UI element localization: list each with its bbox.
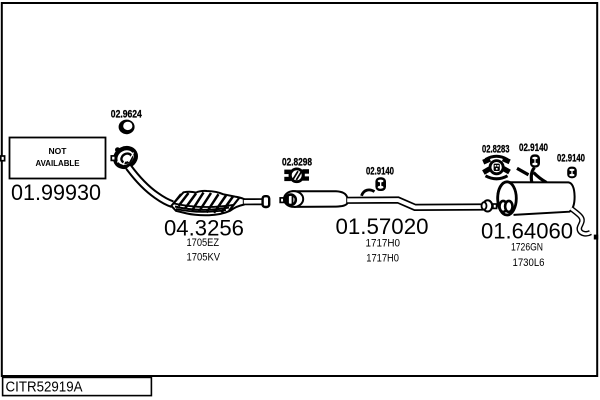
svg-text:1705KV: 1705KV	[187, 252, 221, 264]
svg-text:01.64060: 01.64060	[481, 219, 573, 244]
svg-text:1705EZ: 1705EZ	[187, 237, 220, 249]
svg-text:02.9140: 02.9140	[366, 165, 394, 177]
svg-text:02.8298: 02.8298	[282, 157, 312, 169]
svg-text:02.9140: 02.9140	[557, 153, 585, 165]
svg-text:1726GN: 1726GN	[511, 242, 543, 254]
svg-text:1730L6: 1730L6	[513, 257, 545, 269]
svg-text:CITR52919A: CITR52919A	[6, 378, 83, 395]
svg-text:01.99930: 01.99930	[11, 180, 101, 205]
svg-text:1717H0: 1717H0	[366, 253, 399, 265]
svg-text:AVAILABLE: AVAILABLE	[36, 158, 80, 168]
svg-text:1717H0: 1717H0	[366, 237, 401, 249]
svg-text:02.9140: 02.9140	[519, 142, 548, 154]
svg-text:02.9624: 02.9624	[111, 108, 143, 120]
svg-text:NOT: NOT	[49, 146, 68, 156]
svg-text:02.8283: 02.8283	[482, 143, 510, 155]
svg-text:01.57020: 01.57020	[336, 214, 429, 239]
